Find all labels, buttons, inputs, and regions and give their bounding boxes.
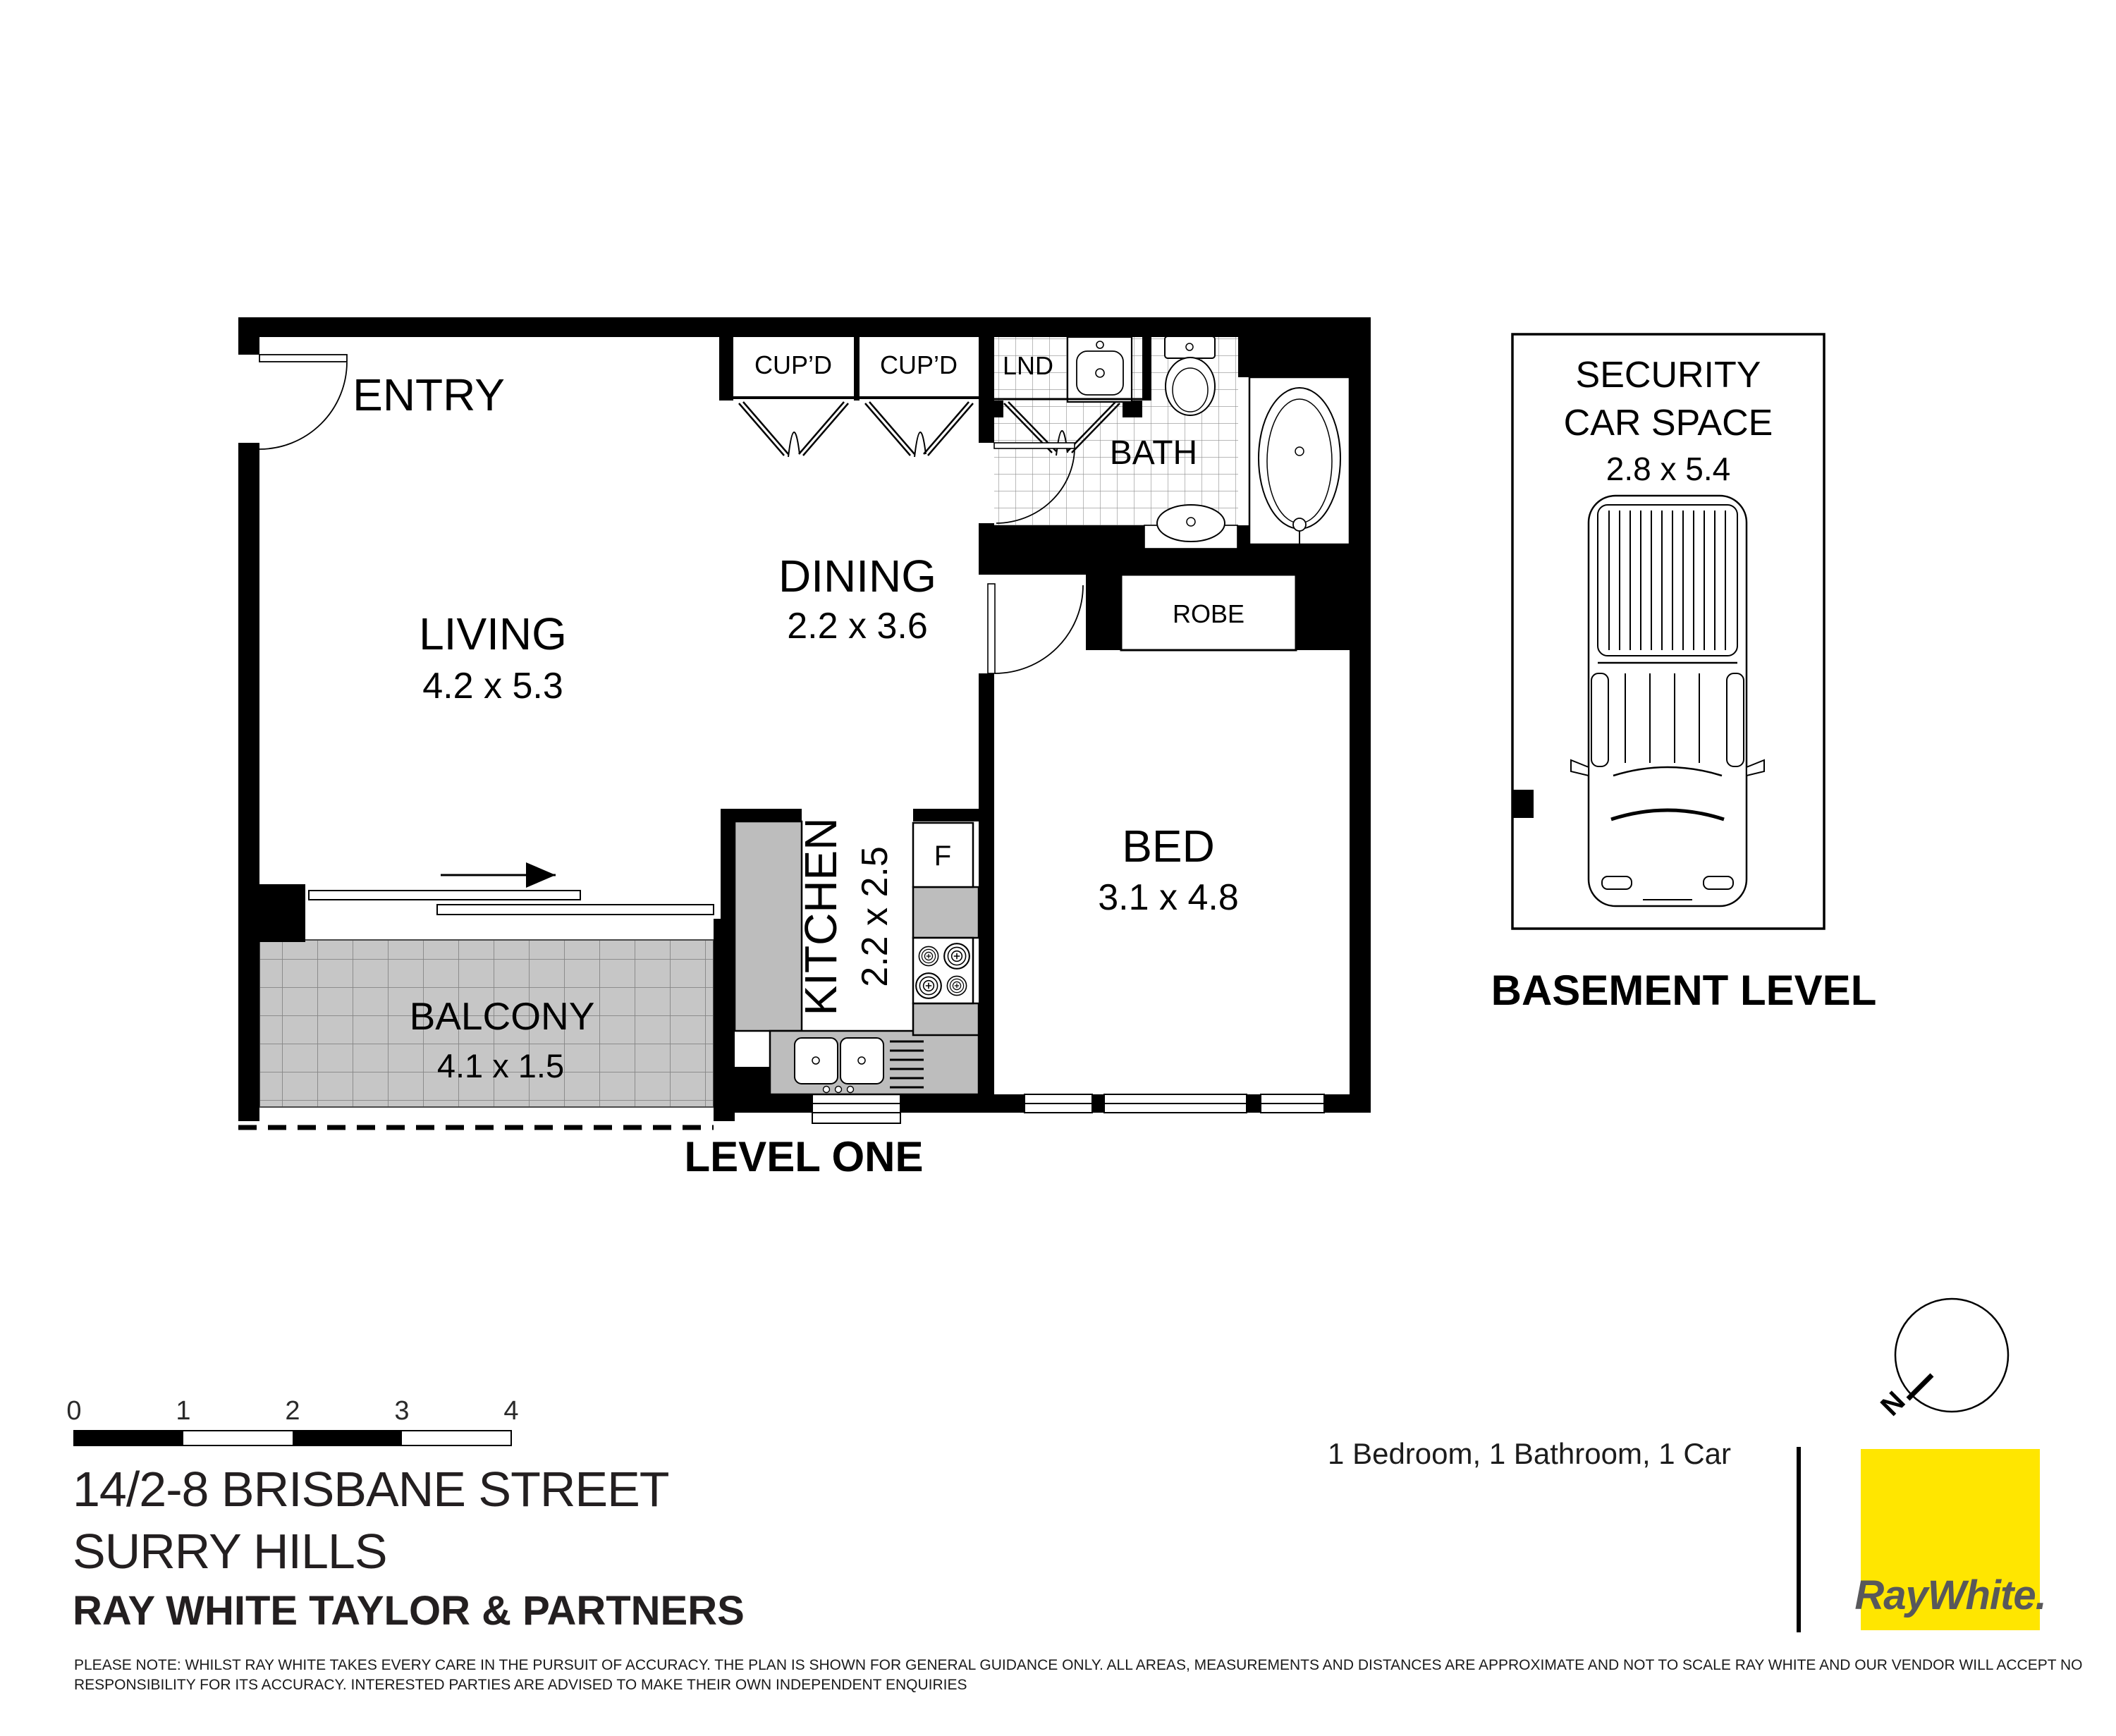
- raywhite-wordmark: RayWhite.: [1854, 1572, 2045, 1618]
- footer-divider: [1797, 1447, 1801, 1632]
- north-label: N: [1875, 1386, 1912, 1422]
- floorplan-drawing: ENTRY LIVING 4.2 x 5.3 DINING 2.2 x 3.6 …: [0, 0, 2116, 1736]
- laundry-toilet-divider: [1142, 337, 1151, 401]
- disclaimer-line1: PLEASE NOTE: WHILST RAY WHITE TAKES EVER…: [74, 1657, 2083, 1673]
- bed-window-2: [1104, 1094, 1247, 1113]
- dining-label: DINING: [778, 551, 936, 601]
- car-space-column: [1512, 790, 1534, 818]
- balcony-left-wall: [238, 942, 259, 1121]
- bath-label: BATH: [1110, 434, 1197, 472]
- disclaimer-line2: RESPONSIBILITY FOR ITS ACCURACY. INTERES…: [74, 1677, 967, 1693]
- stove-icon: [913, 938, 973, 1003]
- cupboard-left-wall: [719, 317, 733, 401]
- laundry-door-stub-right: [1123, 401, 1142, 417]
- scale-tick-4: 4: [503, 1396, 518, 1426]
- robe-label: ROBE: [1173, 599, 1244, 628]
- living-dims: 4.2 x 5.3: [422, 666, 563, 707]
- balcony-right-wall: [714, 919, 735, 1121]
- right-exterior-wall: [1350, 317, 1371, 1113]
- scale-tick-1: 1: [176, 1396, 190, 1426]
- dining-dims: 2.2 x 3.6: [787, 606, 927, 647]
- kitchen-window: [812, 1094, 900, 1123]
- address-line1: 14/2-8 BRISBANE STREET: [73, 1462, 669, 1517]
- kitchen-top-wall-right: [913, 809, 994, 821]
- laundry-door-stub-left: [994, 401, 1003, 417]
- car-space-line2: CAR SPACE: [1564, 403, 1773, 444]
- property-summary: 1 Bedroom, 1 Bathroom, 1 Car: [1328, 1437, 1731, 1470]
- cupboard-right-bifold: [865, 402, 973, 457]
- basement-level-label: BASEMENT LEVEL: [1491, 967, 1877, 1014]
- cupboard-right-label: CUP’D: [880, 350, 958, 379]
- robe-left-wall: [1086, 575, 1121, 650]
- balcony-sliding-door: [309, 875, 714, 915]
- car-top-view-icon: [1571, 496, 1764, 906]
- fridge-label: F: [934, 841, 951, 872]
- car-space-dims: 2.8 x 5.4: [1606, 451, 1730, 487]
- balcony-label: BALCONY: [410, 994, 595, 1038]
- entry-door-swing-arc: [259, 362, 347, 449]
- car-space-line1: SECURITY: [1576, 355, 1761, 396]
- laundry-label: LND: [1003, 351, 1053, 380]
- bed-left-wall: [979, 673, 994, 1094]
- level-one-label: LEVEL ONE: [685, 1133, 924, 1180]
- kitchen-counter-right-upper: [913, 887, 979, 938]
- bed-door-swing-arc: [995, 585, 1083, 673]
- washing-machine-icon: [1068, 337, 1132, 402]
- bed-dims: 3.1 x 4.8: [1098, 877, 1238, 918]
- footer: 14/2-8 BRISBANE STREET SURRY HILLS RAY W…: [73, 1437, 2083, 1693]
- bathtub-icon: [1249, 377, 1350, 544]
- kitchen-label: KITCHEN: [795, 818, 846, 1016]
- kitchen-counter-left: [735, 821, 802, 1031]
- bed-label: BED: [1122, 821, 1215, 872]
- floorplan-page: ENTRY LIVING 4.2 x 5.3 DINING 2.2 x 3.6 …: [0, 0, 2116, 1736]
- cupboard-left-bifold: [739, 402, 848, 457]
- balcony-dims: 4.1 x 1.5: [437, 1047, 564, 1084]
- bed-window-1: [1025, 1094, 1092, 1113]
- entry-label: ENTRY: [353, 369, 505, 420]
- address-line2: SURRY HILLS: [73, 1524, 387, 1579]
- robe-right-wall: [1296, 575, 1371, 650]
- raywhite-logo: RayWhite.: [1854, 1449, 2045, 1630]
- toilet-icon: [1165, 336, 1215, 415]
- kitchen-counter-right-lower: [913, 1003, 979, 1035]
- left-wall-step: [238, 884, 305, 942]
- basement-car-space: SECURITY CAR SPACE 2.8 x 5.4 BASEMENT LE…: [1491, 334, 1877, 1014]
- bed-door: [988, 584, 1083, 673]
- level-one-plan: ENTRY LIVING 4.2 x 5.3 DINING 2.2 x 3.6 …: [238, 317, 1371, 1180]
- left-exterior-wall: [238, 443, 259, 884]
- scale-bar: 0 1 2 3 4: [66, 1396, 518, 1445]
- scale-tick-0: 0: [66, 1396, 81, 1426]
- bath-left-wall-upper: [979, 317, 994, 443]
- scale-tick-3: 3: [394, 1396, 409, 1426]
- scale-tick-2: 2: [285, 1396, 300, 1426]
- top-exterior-wall: [238, 317, 1371, 337]
- left-wall-stub: [238, 317, 259, 355]
- cupboard-doors: [733, 398, 979, 457]
- kitchen-dims: 2.2 x 2.5: [855, 846, 895, 986]
- living-label: LIVING: [419, 609, 567, 659]
- bed-window-3: [1261, 1094, 1324, 1113]
- cupboard-divider: [854, 337, 860, 401]
- entry-door: [259, 355, 347, 449]
- agency-name: RAY WHITE TAYLOR & PARTNERS: [73, 1588, 745, 1634]
- cupboard-left-label: CUP’D: [754, 350, 832, 379]
- north-compass-icon: N: [1875, 1299, 2008, 1422]
